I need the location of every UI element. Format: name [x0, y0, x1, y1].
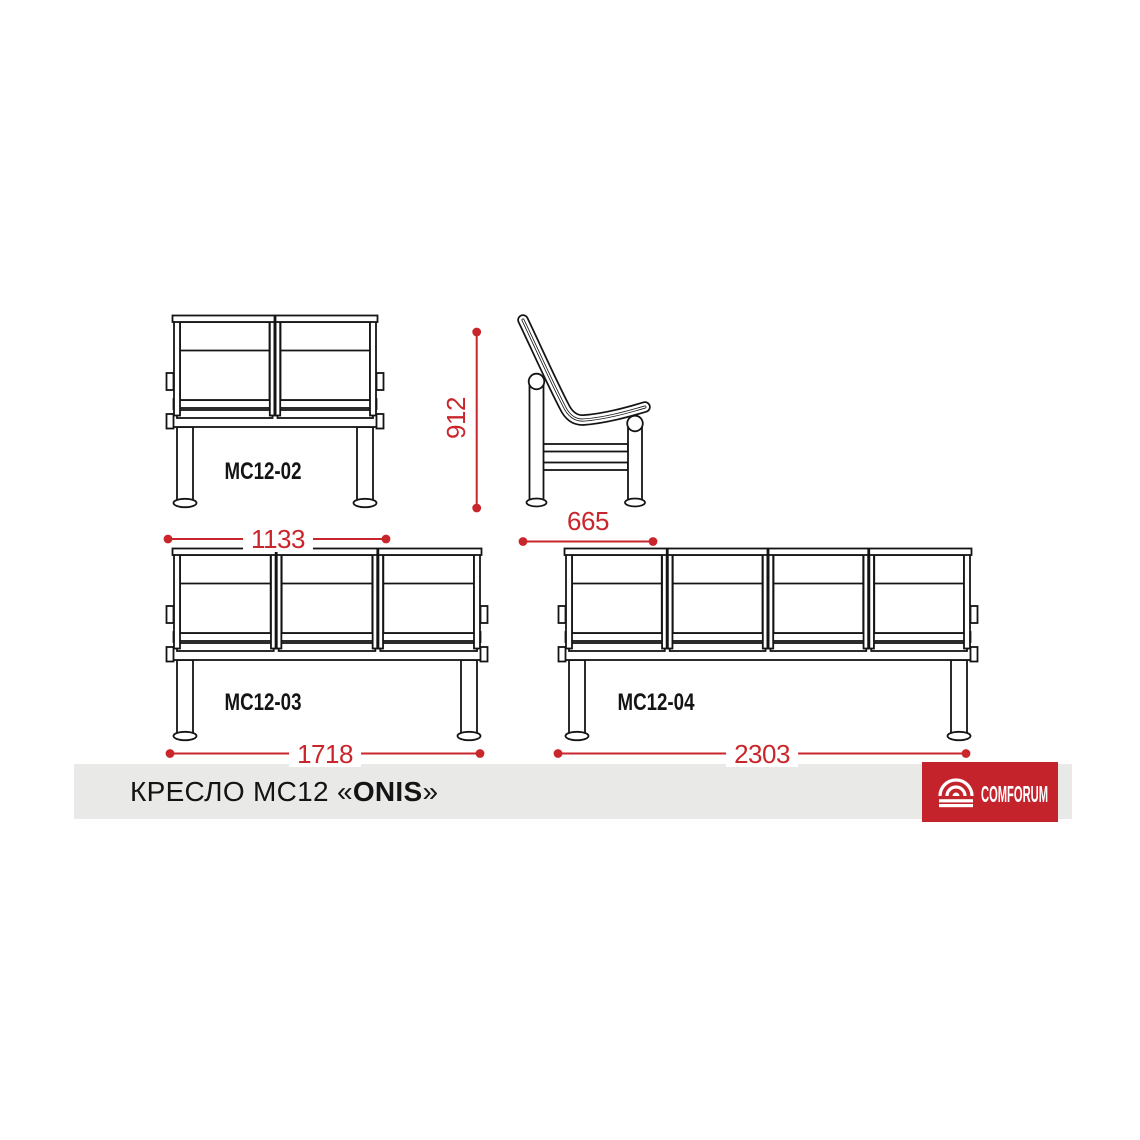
dimline-height-side — [472, 328, 481, 513]
product-title: КРЕСЛО MC12 «ONIS» — [130, 778, 438, 806]
diagram-canvas — [0, 0, 1140, 1140]
label-2seat-model: MC12-02 — [224, 460, 301, 484]
label-3seat-model: MC12-03 — [224, 691, 301, 715]
brand-logo-plate: COMFORUM — [922, 762, 1058, 822]
dimline-depth-side — [519, 537, 658, 546]
bench-3seat-drawing — [167, 549, 488, 741]
dim-height-side: 912 — [443, 397, 469, 439]
dim-width-3seat: 1718 — [289, 741, 361, 767]
dim-width-2seat: 1133 — [243, 526, 313, 552]
dim-width-4seat: 2303 — [726, 741, 798, 767]
brand-name-text: COMFORUM — [981, 781, 1048, 807]
arch-logo-icon — [939, 780, 973, 807]
product-title-regular: КРЕСЛО MC12 « — [130, 776, 353, 807]
product-title-close: » — [422, 776, 438, 807]
product-title-model: ONIS — [353, 776, 423, 807]
brand-logo: COMFORUM — [922, 762, 1058, 822]
label-4seat-model: MC12-04 — [617, 691, 694, 715]
technical-drawing-sheet: MC12-02 MC12-03 MC12-04 1133 665 912 171… — [0, 0, 1140, 1140]
side-view-drawing — [523, 320, 645, 507]
dim-depth-side: 665 — [567, 508, 609, 534]
